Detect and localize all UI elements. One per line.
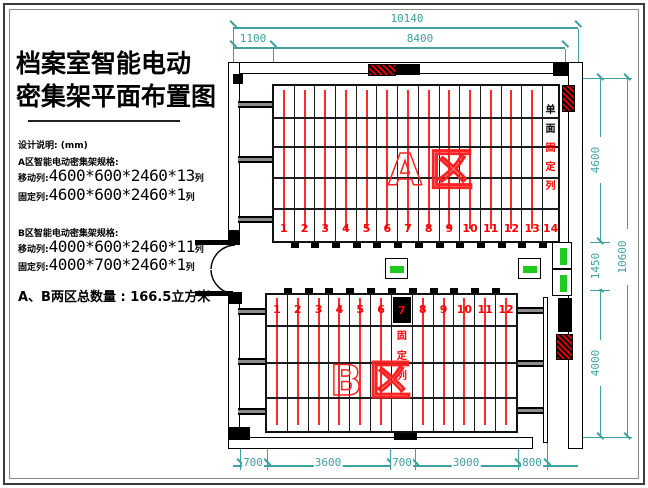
total-quantity: A、B两区总数量 : 166.5立方米 [18, 286, 210, 305]
note-char: 固 [545, 143, 555, 154]
column-number: 11 [475, 303, 495, 316]
dim-extension [267, 449, 268, 470]
title-underline [28, 120, 180, 122]
shelf-column: 12 [501, 86, 522, 241]
spec-value: 4600*600*2460*13 [49, 166, 195, 185]
dim-top-left: 1100 [230, 32, 276, 45]
aisle-indicator-icon [385, 258, 408, 279]
note-char: 单 [545, 105, 555, 116]
wall-stub [238, 156, 272, 163]
wall-stub [238, 216, 272, 223]
rail-end-mark [456, 243, 464, 248]
spec-value: 4600*600*2460*1 [49, 185, 186, 204]
spec-value: 4000*700*2460*1 [49, 255, 186, 274]
shelf-column: 1 [274, 86, 294, 241]
rail-end-mark [430, 288, 438, 293]
zone-a-label: A区 [388, 134, 480, 198]
column-number: 4 [329, 303, 349, 316]
rail-end-mark [325, 288, 333, 293]
dim-extension [578, 29, 579, 62]
fixed-column-note: 单面固定列 [543, 86, 558, 192]
column-number: 2 [288, 303, 308, 316]
design-note: 设计说明: (mm) [18, 138, 88, 151]
rail-end-mark [305, 288, 313, 293]
spec-label: 固定列: [18, 190, 49, 203]
shelf-column: 13 [521, 86, 542, 241]
rail-end-mark [346, 288, 354, 293]
dim-line [233, 27, 578, 29]
grid-line [265, 325, 518, 327]
rail-end-mark [518, 243, 526, 248]
rail-end-mark [409, 288, 417, 293]
rail-end-mark [415, 243, 423, 248]
rail-end-mark [477, 243, 485, 248]
green-bar-icon [560, 248, 567, 265]
column-number: 1 [267, 303, 287, 316]
green-bar-icon [523, 266, 537, 273]
rail-end-mark [492, 288, 500, 293]
hatch-marker-top-right [562, 85, 575, 112]
rail-end-mark [332, 243, 340, 248]
zone-b-label: B区 [330, 347, 418, 408]
wall-stub [238, 408, 265, 415]
rail-end-mark [373, 243, 381, 248]
partition-line [543, 297, 548, 443]
spec-label: 移动列: [18, 242, 49, 255]
spec-label: 移动列: [18, 171, 49, 184]
dim-line [233, 47, 565, 49]
spec-value: 4000*600*2460*11 [49, 237, 195, 256]
wall-stub [238, 101, 272, 108]
dim-bottom-1: 700 [242, 456, 264, 469]
column-number: 3 [315, 222, 335, 235]
green-bar-icon [560, 275, 567, 292]
column-number: 2 [295, 222, 315, 235]
column-number: 3 [309, 303, 329, 316]
column-number: 6 [371, 303, 391, 316]
column-number: 14 [543, 222, 558, 235]
zone-a-spec-fixed: 固定列: 4600*600*2460*1 列 [18, 185, 195, 204]
shelf-column: 5 [356, 86, 377, 241]
wall-pier [233, 74, 243, 84]
hatch-marker-top [368, 64, 396, 76]
dim-bottom-5: 800 [521, 456, 543, 469]
rail-end-mark [367, 288, 375, 293]
shelf-column: 3 [314, 86, 335, 241]
rail-end-mark [291, 243, 299, 248]
aisle-indicator-icon [518, 258, 541, 279]
dim-extension [273, 49, 274, 62]
wall-pier-right-mid [558, 298, 572, 332]
zone-b-spec-mobile: 移动列: 4000*600*2460*11 列 [18, 237, 204, 256]
column-number: 6 [377, 222, 397, 235]
column-number: 10 [460, 222, 480, 235]
dim-right-b: 4000 [589, 340, 601, 386]
dim-top-total: 10140 [377, 12, 437, 25]
rail-end-mark [471, 288, 479, 293]
wall-pier-bottom-left [228, 427, 250, 440]
column-number: 11 [481, 222, 501, 235]
double-door-swing-icon [195, 240, 245, 300]
column-number: 10 [454, 303, 474, 316]
spec-label: 固定列: [18, 260, 49, 273]
dim-extension [240, 449, 241, 470]
column-number: 5 [350, 303, 370, 316]
wall-pier [553, 62, 568, 76]
dim-extension [583, 437, 632, 438]
spec-suffix: 列 [195, 171, 204, 184]
spec-suffix: 列 [186, 190, 195, 203]
rail-end-mark [353, 243, 361, 248]
wall-stub [238, 358, 265, 365]
column-number: 5 [357, 222, 377, 235]
rail-end-mark [388, 288, 396, 293]
dim-right-mid: 1450 [589, 243, 601, 289]
rail-end-mark [498, 243, 506, 248]
rail-end-mark [436, 243, 444, 248]
rail-end-mark [284, 288, 292, 293]
note-char: 固 [397, 331, 407, 342]
control-panel-icon [552, 242, 572, 269]
green-bar-icon [390, 266, 404, 273]
column-number: 8 [413, 303, 433, 316]
shelf-column: 4 [335, 86, 356, 241]
dim-right-a: 4600 [589, 137, 601, 183]
note-char: 定 [545, 162, 555, 173]
dim-extension [583, 78, 632, 79]
wall-left-lower [228, 292, 240, 449]
hatch-marker-right [556, 334, 573, 360]
column-number: 12 [502, 222, 522, 235]
drawing-title-line1: 档案室智能电动 [16, 48, 224, 79]
control-panel-icon [552, 269, 572, 296]
grid-line [272, 117, 560, 119]
rail-end-mark [450, 288, 458, 293]
dim-bottom-2: 3600 [314, 456, 343, 469]
column-number: 7 [398, 222, 418, 235]
shelf-column: 11 [480, 86, 501, 241]
zone-a-spec-mobile: 移动列: 4600*600*2460*13 列 [18, 166, 204, 185]
dim-extension [415, 446, 416, 470]
wall-stub [238, 308, 265, 315]
column-number: 9 [440, 222, 460, 235]
column-number: 1 [274, 222, 294, 235]
dim-extension [233, 29, 234, 62]
drawing-sheet: 档案室智能电动 密集架平面布置图 设计说明: (mm) A区智能电动密集架规格:… [0, 0, 648, 488]
wall-pier [396, 64, 420, 75]
column-number: 7 [398, 304, 406, 317]
rail-end-mark [539, 243, 547, 248]
zone-b-spec-fixed: 固定列: 4000*700*2460*1 列 [18, 255, 195, 274]
dim-bottom-3: 700 [391, 456, 413, 469]
drawing-title-line2: 密集架平面布置图 [16, 81, 224, 112]
wall-bottom [228, 437, 533, 449]
fixed-column-header: 7 [393, 297, 411, 323]
note-char: 面 [545, 124, 555, 135]
column-number: 13 [522, 222, 542, 235]
rail-end-mark [311, 243, 319, 248]
column-number: 12 [496, 303, 516, 316]
shelf-column: 2 [294, 86, 315, 241]
column-number: 8 [419, 222, 439, 235]
grid-line [272, 208, 560, 210]
shelf-column: 单面固定列14 [542, 86, 558, 241]
dim-bottom-4: 3000 [452, 456, 481, 469]
column-number: 4 [336, 222, 356, 235]
spec-suffix: 列 [186, 260, 195, 273]
note-char: 列 [545, 181, 555, 192]
dim-right-total: 10600 [616, 229, 628, 285]
column-number: 9 [434, 303, 454, 316]
dim-top-right: 8400 [394, 32, 446, 45]
rail-end-mark [394, 243, 402, 248]
